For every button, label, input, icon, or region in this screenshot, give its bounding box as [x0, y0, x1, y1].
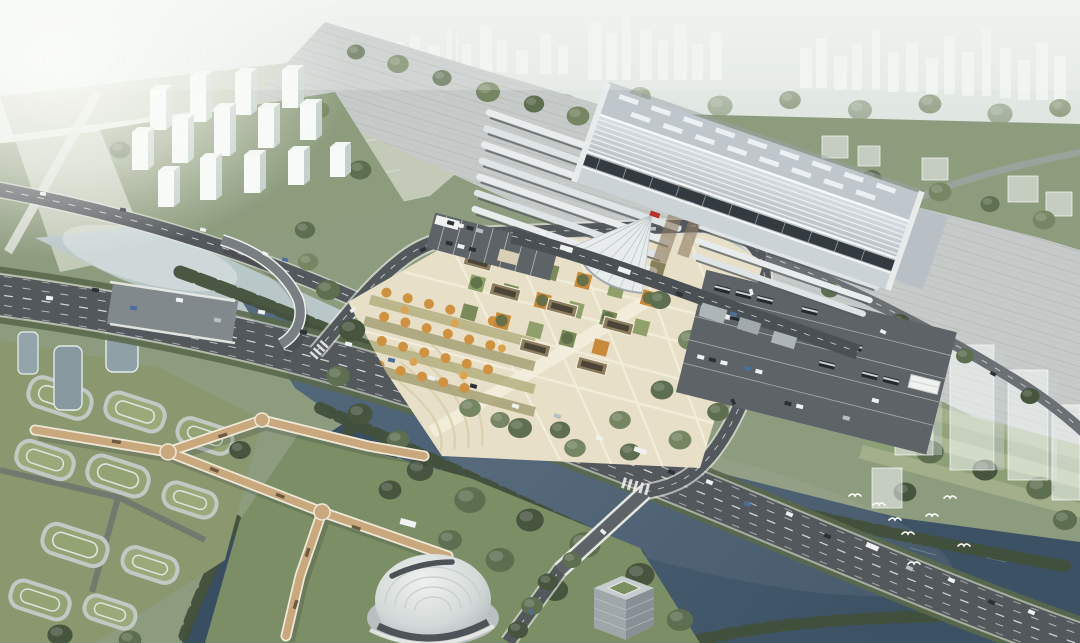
rendering-canvas — [0, 0, 1080, 643]
cube-building — [594, 576, 654, 640]
atmospheric-haze — [0, 0, 1080, 90]
aerial-rendering — [0, 0, 1080, 643]
